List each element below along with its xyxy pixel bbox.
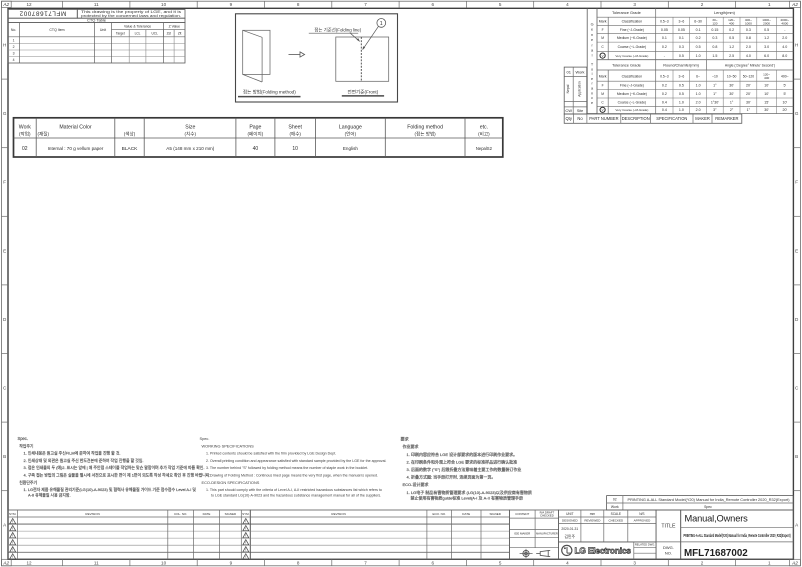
svg-text:LCL: LCL xyxy=(135,32,141,36)
svg-text:Very Coarse (~M-Grade): Very Coarse (~M-Grade) xyxy=(615,54,648,58)
svg-text:Zst: Zst xyxy=(167,32,172,36)
svg-text:1°: 1° xyxy=(747,108,751,112)
svg-text:作业要求: 作业要求 xyxy=(403,443,419,449)
svg-text:1.5: 1.5 xyxy=(712,54,717,58)
svg-text:30': 30' xyxy=(764,108,769,112)
svg-text:CHECKED: CHECKED xyxy=(540,514,554,518)
svg-text:n: n xyxy=(591,91,593,95)
svg-text:2000: 2000 xyxy=(763,21,770,25)
svg-text:2.0: 2.0 xyxy=(782,36,787,40)
svg-text:n: n xyxy=(591,33,593,37)
svg-text:6~: 6~ xyxy=(696,74,700,78)
svg-text:0.5: 0.5 xyxy=(764,28,769,32)
svg-text:0.1: 0.1 xyxy=(662,36,667,40)
svg-text:8.0: 8.0 xyxy=(782,54,787,58)
svg-text:01: 01 xyxy=(566,70,571,75)
svg-text:ECO-DESIGN SPECIFICATIONS: ECO-DESIGN SPECIFICATIONS xyxy=(202,480,260,485)
svg-text:0.5~3: 0.5~3 xyxy=(660,20,669,24)
svg-text:2.0: 2.0 xyxy=(696,108,701,112)
svg-text:ECO-设计要求: ECO-设计要求 xyxy=(403,481,429,487)
svg-text:V: V xyxy=(602,54,604,58)
svg-text:8: 8 xyxy=(297,2,300,7)
svg-text:1: 1 xyxy=(768,2,771,7)
svg-text:ECO. NO.: ECO. NO. xyxy=(432,512,446,516)
svg-text:E: E xyxy=(3,248,6,253)
svg-text:SCALE: SCALE xyxy=(611,512,621,516)
svg-text:DWG.: DWG. xyxy=(663,545,674,550)
svg-text:50~120: 50~120 xyxy=(743,74,755,78)
svg-text:2°: 2° xyxy=(730,108,734,112)
svg-text:0.1: 0.1 xyxy=(679,36,684,40)
svg-text:CTQ Item: CTQ Item xyxy=(49,28,64,32)
svg-text:Mark: Mark xyxy=(599,74,607,78)
svg-text:SPECIFICATION: SPECIFICATION xyxy=(656,116,687,121)
svg-text:MFL71687002: MFL71687002 xyxy=(684,548,748,559)
svg-text:(재질): (재질) xyxy=(38,130,50,137)
svg-text:1: 1 xyxy=(13,38,15,42)
svg-text:(접는 방법): (접는 방법) xyxy=(414,130,436,136)
svg-text:3: 3 xyxy=(13,52,15,56)
svg-text:(치수): (치수) xyxy=(185,130,197,137)
svg-text:MAKER: MAKER xyxy=(695,116,710,121)
svg-text:1.2: 1.2 xyxy=(729,45,734,49)
svg-text:REVISION: REVISION xyxy=(331,512,345,516)
svg-text:2: 2 xyxy=(13,45,15,49)
svg-text:Spec.: Spec. xyxy=(200,436,210,441)
svg-text:작업주기: 작업주기 xyxy=(19,443,34,448)
svg-text:10: 10 xyxy=(161,2,167,7)
svg-text:0.05: 0.05 xyxy=(661,28,668,32)
svg-text:APPROVED: APPROVED xyxy=(634,518,652,522)
svg-text:o: o xyxy=(591,67,593,71)
svg-text:Work: Work xyxy=(575,70,584,75)
svg-text:02: 02 xyxy=(22,146,28,152)
svg-text:Site: Site xyxy=(577,109,583,113)
svg-text:H: H xyxy=(795,43,798,48)
svg-text:M: M xyxy=(601,92,604,96)
svg-text:2.0: 2.0 xyxy=(696,100,701,104)
svg-text:Qty: Qty xyxy=(566,116,573,121)
svg-text:9: 9 xyxy=(230,561,233,566)
svg-text:30': 30' xyxy=(729,84,734,88)
svg-text:(언어): (언어) xyxy=(345,130,357,137)
svg-text:2020-01-31: 2020-01-31 xyxy=(561,527,578,531)
svg-text:Manual,Owners: Manual,Owners xyxy=(685,514,749,524)
svg-text:0.15: 0.15 xyxy=(711,28,718,32)
svg-text:REMARKER: REMARKER xyxy=(715,116,738,121)
svg-text:Classification: Classification xyxy=(622,74,643,78)
svg-text:4. 折叠方式图: 当手册打开时, 连续页面为第一页。: 4. 折叠方式图: 当手册打开时, 连续页面为第一页。 xyxy=(407,474,496,480)
svg-text:400: 400 xyxy=(764,76,769,80)
svg-text:0.1: 0.1 xyxy=(696,28,701,32)
svg-text:11: 11 xyxy=(94,561,99,566)
svg-text:1. This part should comply wi: 1. This part should comply with the crit… xyxy=(206,488,382,492)
svg-text:1: 1 xyxy=(380,21,383,27)
svg-text:30': 30' xyxy=(746,100,751,104)
svg-text:G: G xyxy=(591,23,594,27)
svg-text:Fine (~J-Grade): Fine (~J-Grade) xyxy=(620,84,644,88)
svg-text:친환단주기: 친환단주기 xyxy=(19,480,37,485)
svg-text:6: 6 xyxy=(432,561,435,566)
svg-text:2: 2 xyxy=(701,561,704,566)
svg-text:禁止使用有害物质guide标准 Level(A-I 及 A-: 禁止使用有害物质guide标准 Level(A-I 及 A-II 有害物质管理手… xyxy=(411,494,523,500)
svg-text:3.0: 3.0 xyxy=(764,45,769,49)
svg-text:Spec.: Spec. xyxy=(18,436,28,441)
svg-text:(색상): (색상) xyxy=(124,130,136,137)
svg-text:(페이지): (페이지) xyxy=(248,130,264,137)
svg-text:REVIEWED: REVIEWED xyxy=(584,518,601,522)
svg-text:11: 11 xyxy=(94,2,99,7)
svg-text:A2: A2 xyxy=(791,561,798,567)
svg-text:Medium (~K-Grade): Medium (~K-Grade) xyxy=(617,36,647,40)
svg-text:G: G xyxy=(3,111,7,116)
svg-text:Target: Target xyxy=(116,32,125,36)
svg-text:COL. NO.: COL. NO. xyxy=(174,512,187,516)
svg-text:1.0: 1.0 xyxy=(679,100,684,104)
svg-text:3. The number behind "S" follo: 3. The number behind "S" followed by fol… xyxy=(206,466,368,470)
svg-text:02: 02 xyxy=(613,498,617,502)
svg-text:Value & Tolerance: Value & Tolerance xyxy=(124,24,151,28)
svg-text:TITLE: TITLE xyxy=(661,524,676,530)
svg-text:0.2: 0.2 xyxy=(662,92,667,96)
svg-text:SYM.: SYM. xyxy=(9,512,17,516)
svg-text:1°: 1° xyxy=(730,100,734,104)
svg-text:B: B xyxy=(3,454,6,459)
svg-text:to LGE standard LG(10)-A-9023: to LGE standard LG(10)-A-9023 and the ha… xyxy=(211,493,381,497)
svg-text:400: 400 xyxy=(729,21,734,25)
svg-text:Work: Work xyxy=(19,125,31,131)
svg-text:Classification: Classification xyxy=(622,20,643,24)
svg-text:0.8: 0.8 xyxy=(712,45,717,49)
svg-text:4: 4 xyxy=(566,2,569,7)
svg-text:2: 2 xyxy=(701,2,704,7)
svg-text:10': 10' xyxy=(764,92,769,96)
svg-text:UCL: UCL xyxy=(152,32,159,36)
svg-text:3. 접은 인쇄물의 두 (예)2. 표시는 앞에 | 매: 3. 접은 인쇄물의 두 (예)2. 표시는 앞에 | 매 주안접 스테이플 작… xyxy=(24,465,205,470)
svg-text:DESCRIPTION: DESCRIPTION xyxy=(622,116,650,121)
svg-text:40: 40 xyxy=(253,146,259,152)
svg-text:DATE: DATE xyxy=(203,512,211,516)
svg-text:10~50: 10~50 xyxy=(727,74,737,78)
svg-text:3~6: 3~6 xyxy=(679,74,685,78)
svg-text:5': 5' xyxy=(783,84,786,88)
svg-text:0.5: 0.5 xyxy=(729,36,734,40)
svg-text:Mark: Mark xyxy=(599,20,607,24)
svg-text:No: No xyxy=(577,116,583,121)
svg-text:B: B xyxy=(795,454,798,459)
svg-text:2.0: 2.0 xyxy=(746,45,751,49)
svg-text:10': 10' xyxy=(764,84,769,88)
svg-text:0.4: 0.4 xyxy=(662,108,667,112)
svg-text:Spec: Spec xyxy=(704,505,712,509)
svg-text:Work: Work xyxy=(611,505,619,509)
svg-text:10': 10' xyxy=(782,100,787,104)
svg-text:1.0: 1.0 xyxy=(696,54,701,58)
svg-text:Language: Language xyxy=(339,125,362,131)
svg-text:20': 20' xyxy=(782,108,787,112)
svg-text:Application: Application xyxy=(577,81,581,97)
svg-text:SYM.: SYM. xyxy=(242,512,250,516)
svg-text:30': 30' xyxy=(729,92,734,96)
svg-text:12: 12 xyxy=(26,2,32,7)
svg-text:G: G xyxy=(795,111,799,116)
svg-text:NepalS2: NepalS2 xyxy=(476,146,493,151)
svg-text:5: 5 xyxy=(499,561,502,566)
svg-text:전면기준(Front): 전면기준(Front) xyxy=(348,89,379,96)
svg-text:2. 인쇄상태 및 외관은 원고실 주신 한도견본에 준하여: 2. 인쇄상태 및 외관은 원고실 주신 한도견본에 준하여 작업 진행을 할 … xyxy=(24,458,144,463)
svg-text:REVISION: REVISION xyxy=(85,512,99,516)
svg-text:0.2: 0.2 xyxy=(662,45,667,49)
svg-text:접는 기준선(Folding line): 접는 기준선(Folding line) xyxy=(314,26,361,33)
svg-text:DESIGNED: DESIGNED xyxy=(562,518,579,522)
svg-text:4. Drawing of Folding Method :: 4. Drawing of Folding Method : Continous… xyxy=(206,474,378,478)
svg-text:Fine (~J-Grade): Fine (~J-Grade) xyxy=(620,28,644,32)
svg-text:1: 1 xyxy=(768,561,771,566)
svg-text:Unit: Unit xyxy=(100,28,106,32)
svg-text:A2: A2 xyxy=(791,2,798,8)
svg-text:CTQ Table: CTQ Table xyxy=(87,18,107,23)
svg-text:120: 120 xyxy=(712,21,717,25)
svg-text:RELATED DWG.: RELATED DWG. xyxy=(635,543,656,547)
svg-text:LG Electronics: LG Electronics xyxy=(575,546,632,556)
svg-text:3°: 3° xyxy=(713,108,717,112)
svg-text:0.4: 0.4 xyxy=(662,100,667,104)
svg-text:김민주: 김민주 xyxy=(565,534,576,539)
svg-text:A2: A2 xyxy=(2,561,9,567)
svg-text:12: 12 xyxy=(26,561,32,566)
svg-text:Zlt: Zlt xyxy=(178,32,182,36)
svg-text:l: l xyxy=(592,54,593,58)
svg-text:1°30': 1°30' xyxy=(711,100,719,104)
svg-text:CHECKED: CHECKED xyxy=(608,518,624,522)
svg-text:IDE MAKER: IDE MAKER xyxy=(514,532,530,536)
svg-text:MANUFACTURER: MANUFACTURER xyxy=(536,532,558,536)
svg-text:BLACK: BLACK xyxy=(122,146,139,152)
svg-text:要求: 要求 xyxy=(401,436,409,442)
svg-text:4.0: 4.0 xyxy=(746,54,751,58)
svg-text:0.5: 0.5 xyxy=(696,45,701,49)
svg-text:0.8: 0.8 xyxy=(746,36,751,40)
svg-text:9: 9 xyxy=(230,2,233,7)
svg-text:No.: No. xyxy=(11,28,16,32)
svg-text:7: 7 xyxy=(364,2,367,7)
svg-text:6: 6 xyxy=(432,2,435,7)
svg-text:Round/Chamfer(mm): Round/Chamfer(mm) xyxy=(663,63,699,67)
svg-text:1000: 1000 xyxy=(745,21,752,25)
svg-text:Size: Size xyxy=(185,125,195,131)
svg-text:400~: 400~ xyxy=(781,74,789,78)
svg-text:e: e xyxy=(591,28,593,32)
svg-text:0.2: 0.2 xyxy=(662,84,667,88)
svg-text:1. 인쇄내용은 원고실 주신FILM에 준하여 작업을 진: 1. 인쇄내용은 원고실 주신FILM에 준하여 작업을 진행 할 것. xyxy=(24,451,121,456)
svg-text:10: 10 xyxy=(161,561,167,566)
svg-text:8: 8 xyxy=(297,561,300,566)
svg-text:4000: 4000 xyxy=(781,21,788,25)
svg-text:Sheet: Sheet xyxy=(288,125,302,131)
svg-text:Folding method: Folding method xyxy=(407,125,443,131)
svg-text:SIGNED: SIGNED xyxy=(489,512,501,516)
svg-text:1. LG电子 制品有害物质管理要求 (LG(10)-A-9: 1. LG电子 制品有害物质管理要求 (LG(10)-A-9023)以及供应商有… xyxy=(407,489,532,495)
svg-text:UNIT: UNIT xyxy=(566,512,573,516)
svg-text:English: English xyxy=(343,146,359,151)
svg-text:0.2: 0.2 xyxy=(729,28,734,32)
svg-text:6.0: 6.0 xyxy=(764,54,769,58)
svg-text:Page: Page xyxy=(249,125,261,131)
svg-text:CW: CW xyxy=(565,108,572,113)
svg-text:M: M xyxy=(601,36,604,40)
svg-text:20': 20' xyxy=(746,92,751,96)
svg-text:A-II 유해물질 사용 금지함.: A-II 유해물질 사용 금지함. xyxy=(28,492,71,497)
svg-text:Medium (~K-Grade): Medium (~K-Grade) xyxy=(617,92,647,96)
svg-text:e: e xyxy=(591,38,593,42)
svg-text:PRINTING-A-ALL Standard Model(: PRINTING-A-ALL Standard Model(Y20) Manua… xyxy=(684,533,791,538)
svg-text:Material Color: Material Color xyxy=(59,125,92,131)
svg-text:F: F xyxy=(3,180,6,185)
svg-text:Angle (:Degree° Minute' Second: Angle (:Degree° Minute' Second') xyxy=(725,63,775,67)
svg-text:2. Overall printing condition: 2. Overall printing condition and appear… xyxy=(206,459,386,463)
svg-text:e: e xyxy=(591,101,593,105)
svg-text:15': 15' xyxy=(764,100,769,104)
svg-text:2. 在印刷条件和外观上符合 LGE 要求的标准样品进行确认: 2. 在印刷条件和外观上符合 LGE 要求的标准样品进行确认批准 xyxy=(407,459,518,465)
svg-text:3: 3 xyxy=(633,2,636,7)
svg-text:1. 印刷内容应符合 LGE 设计部要求的版本进行印刷作业要: 1. 印刷内容应符合 LGE 设计部要求的版本进行印刷作业要求。 xyxy=(407,451,518,457)
svg-text:접는 방법(Folding method): 접는 방법(Folding method) xyxy=(243,89,296,95)
svg-text:F: F xyxy=(602,84,604,88)
svg-text:1°: 1° xyxy=(713,84,717,88)
svg-text:V: V xyxy=(602,108,604,112)
svg-text:1.0: 1.0 xyxy=(679,108,684,112)
svg-text:3. 后面的数字 ("S") 后跟折叠方法意味着主要工作的数: 3. 后面的数字 ("S") 后跟折叠方法意味着主要工作的数量装订作业 xyxy=(407,466,522,472)
svg-text:0.5: 0.5 xyxy=(679,54,684,58)
svg-text:Tolerance Grade: Tolerance Grade xyxy=(612,10,641,15)
svg-text:20': 20' xyxy=(746,84,751,88)
svg-text:(비고): (비고) xyxy=(478,130,490,137)
svg-text:c: c xyxy=(591,96,593,100)
svg-text:4: 4 xyxy=(13,58,15,62)
svg-text:1. Printed contents should be: 1. Printed contents should be satisfied … xyxy=(206,452,336,456)
svg-text:etc.: etc. xyxy=(480,125,488,131)
svg-text:WORKING SPECIFICATIONS: WORKING SPECIFICATIONS xyxy=(202,443,255,448)
svg-text:(작업): (작업) xyxy=(19,130,31,137)
svg-text:3~6: 3~6 xyxy=(679,20,685,24)
svg-text:4.0: 4.0 xyxy=(782,45,787,49)
svg-text:4. 구족 접는 방법의 그림은 실물을 펼시에 서전으로: 4. 구족 접는 방법의 그림은 실물을 펼시에 서전으로 표시한 면이 제 1… xyxy=(24,473,211,478)
svg-text:0.5: 0.5 xyxy=(679,92,684,96)
svg-text:0.5: 0.5 xyxy=(679,84,684,88)
svg-text:e: e xyxy=(591,77,593,81)
svg-text:3: 3 xyxy=(633,561,636,566)
svg-text:~10: ~10 xyxy=(712,74,718,78)
svg-text:A2: A2 xyxy=(2,2,9,8)
svg-text:(매수): (매수) xyxy=(289,130,301,137)
svg-text:Tolerance Grade: Tolerance Grade xyxy=(612,62,641,67)
svg-text:A5 (148 mm x 210 mm): A5 (148 mm x 210 mm) xyxy=(166,146,214,151)
svg-text:5: 5 xyxy=(499,2,502,7)
svg-text:0.2: 0.2 xyxy=(696,36,701,40)
svg-text:5': 5' xyxy=(783,92,786,96)
svg-text:mm: mm xyxy=(590,512,596,516)
svg-text:MFL71687002: MFL71687002 xyxy=(19,10,66,17)
svg-text:Coarse (~L-Grade): Coarse (~L-Grade) xyxy=(618,45,647,49)
svg-text:0.3: 0.3 xyxy=(712,36,717,40)
svg-text:Z Value: Z Value xyxy=(169,24,181,28)
svg-text:PART NUMBER: PART NUMBER xyxy=(589,116,618,121)
svg-text:1.0: 1.0 xyxy=(696,84,701,88)
svg-text:0.5~3: 0.5~3 xyxy=(660,74,669,78)
svg-text:10: 10 xyxy=(292,146,298,152)
svg-text:Internal : 70 g vellum paper: Internal : 70 g vellum paper xyxy=(48,146,104,151)
svg-text:DATE: DATE xyxy=(462,512,470,516)
svg-text:Nepal: Nepal xyxy=(566,84,570,93)
svg-text:Length(mm): Length(mm) xyxy=(714,10,736,15)
svg-text:0.3: 0.3 xyxy=(679,45,684,49)
svg-text:Very Coarse (~M-Grade): Very Coarse (~M-Grade) xyxy=(615,108,648,112)
svg-text:Coarse (~L-Grade): Coarse (~L-Grade) xyxy=(618,100,647,104)
svg-text:PRINTING A-ALL Standard Model(: PRINTING A-ALL Standard Model(Y20) Manua… xyxy=(628,498,790,502)
svg-text:F: F xyxy=(602,28,604,32)
svg-text:6~30: 6~30 xyxy=(694,20,702,24)
svg-text:1.2: 1.2 xyxy=(764,36,769,40)
svg-text:7: 7 xyxy=(364,561,367,566)
svg-text:SIGNED: SIGNED xyxy=(225,512,237,516)
svg-text:NO.: NO. xyxy=(665,551,672,556)
svg-text:N/S: N/S xyxy=(639,512,644,516)
svg-text:0.3: 0.3 xyxy=(746,28,751,32)
svg-text:1°: 1° xyxy=(713,92,717,96)
svg-text:2.5: 2.5 xyxy=(729,54,734,58)
svg-text:l: l xyxy=(592,72,593,76)
svg-text:H: H xyxy=(3,43,6,48)
svg-text:E: E xyxy=(795,248,798,253)
svg-text:1.0: 1.0 xyxy=(696,92,701,96)
svg-text:4: 4 xyxy=(566,561,569,566)
svg-text:CONTENT: CONTENT xyxy=(515,512,529,516)
svg-text:0.05: 0.05 xyxy=(678,28,685,32)
svg-text:F: F xyxy=(795,180,798,185)
